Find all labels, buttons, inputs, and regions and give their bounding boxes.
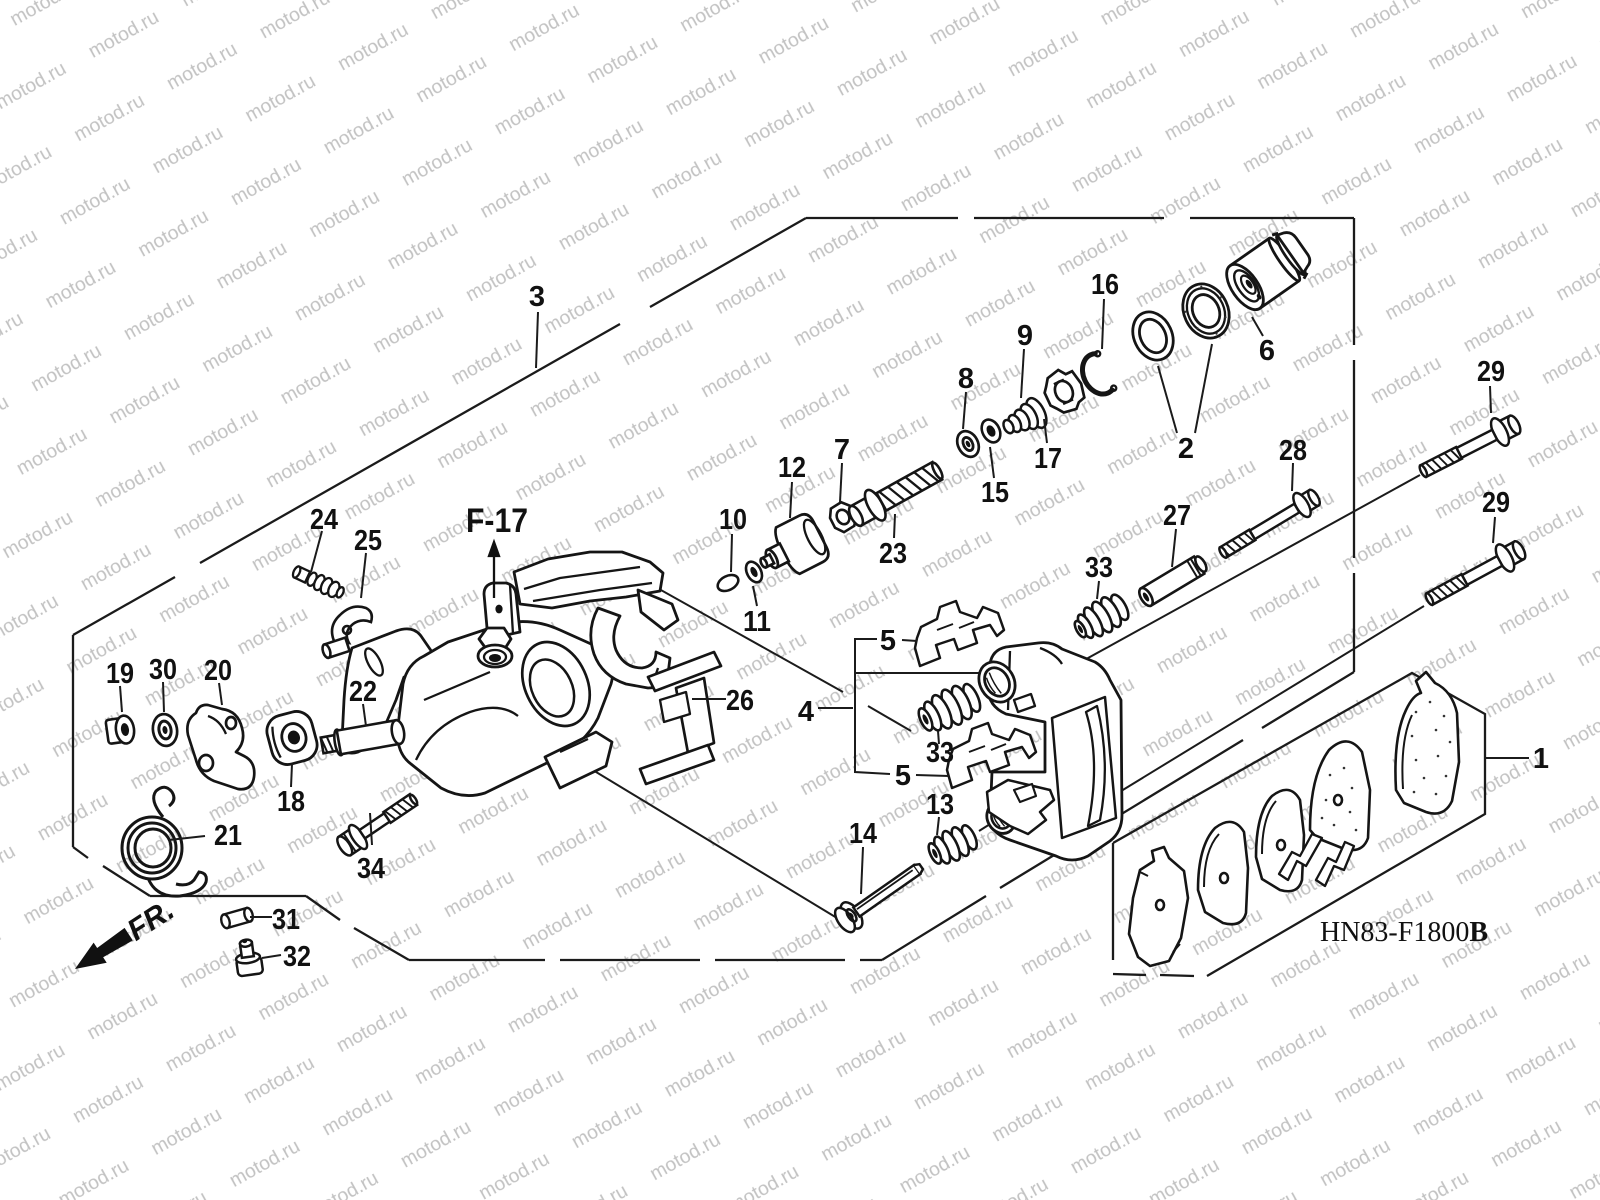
svg-text:29: 29 — [1477, 356, 1505, 388]
svg-text:27: 27 — [1163, 500, 1191, 532]
svg-text:24: 24 — [310, 504, 338, 536]
svg-text:13: 13 — [926, 789, 954, 821]
svg-text:20: 20 — [204, 655, 232, 687]
svg-text:4: 4 — [798, 696, 814, 728]
svg-text:1: 1 — [1533, 743, 1549, 775]
svg-text:HN83-F1800B: HN83-F1800B — [1320, 917, 1488, 948]
svg-text:14: 14 — [849, 818, 877, 850]
svg-text:31: 31 — [272, 904, 300, 936]
svg-text:22: 22 — [349, 676, 377, 708]
svg-text:3: 3 — [529, 281, 545, 313]
svg-text:9: 9 — [1017, 320, 1033, 352]
svg-text:28: 28 — [1279, 435, 1307, 467]
svg-text:5: 5 — [895, 760, 911, 792]
svg-text:29: 29 — [1482, 487, 1510, 519]
svg-text:21: 21 — [214, 820, 242, 852]
svg-text:26: 26 — [726, 685, 754, 717]
svg-text:5: 5 — [880, 625, 896, 657]
svg-text:8: 8 — [958, 363, 974, 395]
svg-text:34: 34 — [357, 853, 385, 885]
svg-text:18: 18 — [277, 786, 305, 818]
svg-text:7: 7 — [834, 434, 850, 466]
svg-text:2: 2 — [1178, 433, 1194, 465]
svg-text:11: 11 — [743, 606, 771, 638]
svg-text:10: 10 — [719, 504, 747, 536]
svg-text:19: 19 — [106, 658, 134, 690]
svg-text:23: 23 — [879, 538, 907, 570]
svg-text:32: 32 — [283, 941, 311, 973]
svg-text:16: 16 — [1091, 269, 1119, 301]
svg-text:17: 17 — [1034, 443, 1062, 475]
svg-text:15: 15 — [981, 477, 1009, 509]
svg-text:6: 6 — [1259, 335, 1275, 367]
svg-text:33: 33 — [926, 737, 954, 769]
svg-text:25: 25 — [354, 525, 382, 557]
svg-text:12: 12 — [778, 452, 806, 484]
svg-text:33: 33 — [1085, 552, 1113, 584]
svg-text:F-17: F-17 — [466, 502, 528, 540]
svg-text:30: 30 — [149, 654, 177, 686]
